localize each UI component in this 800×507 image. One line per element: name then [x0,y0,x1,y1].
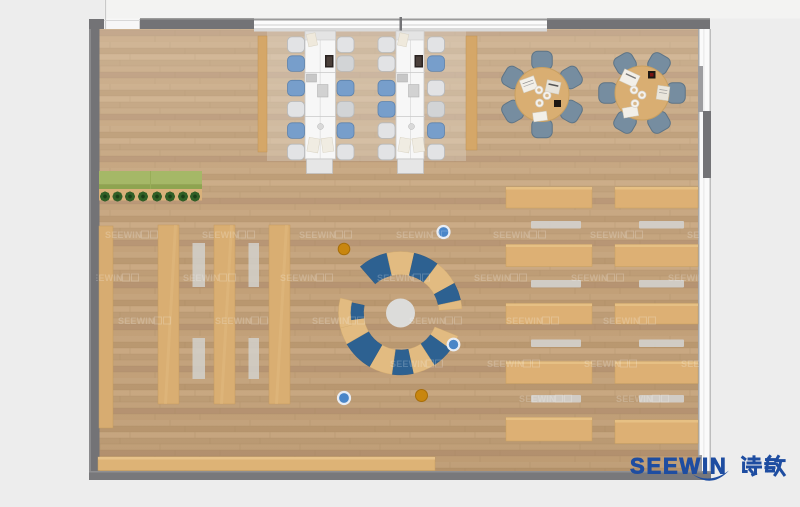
svg-text:SEEWIN: SEEWIN [603,316,640,326]
svg-text:SEEWIN: SEEWIN [584,359,621,369]
svg-text:SEEWIN: SEEWIN [390,359,427,369]
svg-text:SEEWIN: SEEWIN [280,273,317,283]
svg-text:SEEWIN: SEEWIN [506,316,543,326]
svg-text:SEEWIN: SEEWIN [215,316,252,326]
svg-text:SEEWIN: SEEWIN [630,454,728,479]
svg-text:SEEWIN: SEEWIN [474,273,511,283]
svg-text:SEEWIN: SEEWIN [312,316,349,326]
svg-text:SEEWIN: SEEWIN [487,359,524,369]
svg-text:SEEWIN: SEEWIN [409,316,446,326]
svg-text:SEEWIN: SEEWIN [616,394,653,404]
svg-text:SEEWIN: SEEWIN [396,230,433,240]
svg-text:SEEWIN: SEEWIN [183,273,220,283]
svg-text:SEEWIN: SEEWIN [571,273,608,283]
svg-text:SEEWIN: SEEWIN [118,316,155,326]
svg-text:SEEWIN: SEEWIN [202,230,239,240]
svg-text:SEEWIN: SEEWIN [377,273,414,283]
svg-text:SEEWIN: SEEWIN [105,230,142,240]
svg-text:SEEWIN: SEEWIN [493,230,530,240]
svg-text:SEEWIN: SEEWIN [519,394,556,404]
svg-text:SEEWIN: SEEWIN [590,230,627,240]
svg-text:SEEWIN: SEEWIN [299,230,336,240]
